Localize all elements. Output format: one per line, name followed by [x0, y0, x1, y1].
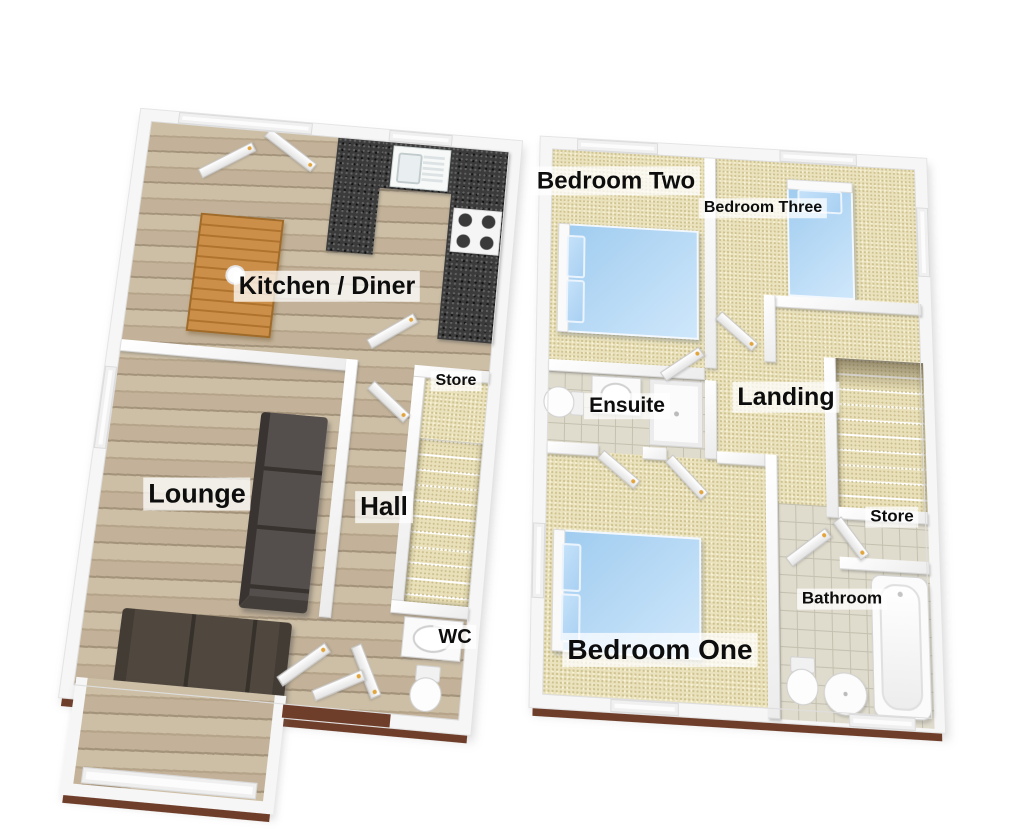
worktop-peninsula [326, 137, 385, 255]
pillow [561, 593, 581, 643]
3d-stage [0, 0, 1024, 830]
window [610, 699, 678, 716]
ensuite-basin [591, 375, 641, 416]
ensuite-door-leaf [597, 450, 640, 490]
ensuite-toilet [544, 386, 584, 418]
porch [60, 677, 286, 815]
window [532, 522, 546, 598]
wall [705, 380, 717, 459]
kitchen-sink [389, 145, 451, 191]
window [916, 207, 930, 277]
pillow [566, 279, 585, 323]
shower-tray [649, 379, 703, 449]
double-bed-bedroom-two [557, 223, 699, 340]
store-door-leaf [366, 313, 418, 349]
wall [319, 359, 359, 618]
dining-table [186, 213, 285, 338]
sofa-large [238, 412, 328, 614]
window [577, 139, 658, 155]
patio-door-leaf [264, 128, 317, 172]
window [849, 714, 916, 731]
wall [704, 157, 716, 369]
bathroom-toilet [786, 656, 818, 705]
bedroom-three-door-leaf [715, 311, 758, 351]
wc-basin [401, 616, 464, 662]
wc-toilet [408, 664, 443, 712]
wall [764, 295, 777, 363]
wall [547, 441, 599, 456]
floorplan-image: Kitchen / Diner Store Lounge Hall WC Bed… [0, 0, 1024, 830]
kitchen-door-leaf [367, 381, 411, 423]
pillow [797, 189, 842, 214]
double-bed-bedroom-one [551, 529, 701, 661]
wall [119, 339, 357, 372]
window [779, 150, 856, 166]
threshold [282, 705, 391, 728]
bedroom-one-door-leaf [665, 454, 708, 500]
single-bed-bedroom-three [787, 179, 856, 300]
front-door-leaf [311, 669, 365, 701]
staircase-down [836, 358, 928, 524]
ground-floor-plan [59, 109, 522, 735]
first-floor-plan [529, 137, 945, 733]
patio-door-leaf [198, 142, 257, 179]
bathtub [871, 574, 933, 721]
wall [717, 451, 765, 466]
window [94, 366, 117, 449]
window [178, 112, 313, 135]
pillow [561, 543, 581, 592]
hob [450, 208, 503, 256]
wall [765, 454, 780, 719]
wall [643, 447, 667, 461]
pillow [566, 235, 585, 279]
